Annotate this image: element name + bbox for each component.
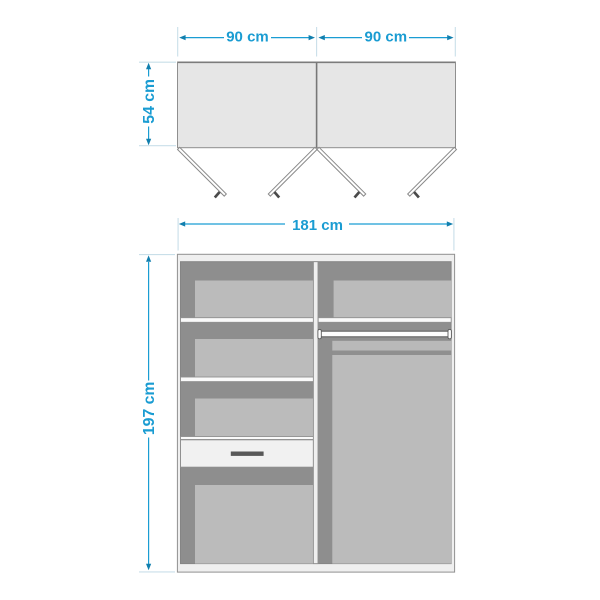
svg-text:90 cm: 90 cm (365, 28, 408, 45)
svg-text:197 cm: 197 cm (141, 382, 158, 436)
svg-text:54 cm: 54 cm (141, 79, 158, 124)
svg-text:181 cm: 181 cm (292, 217, 343, 234)
svg-text:90 cm: 90 cm (226, 28, 269, 45)
